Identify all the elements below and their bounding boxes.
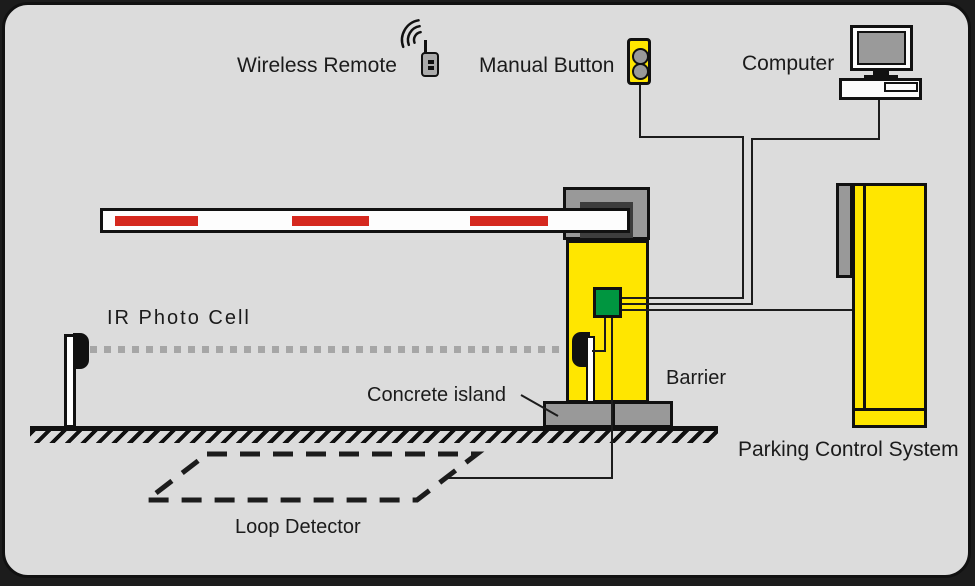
parking-cabinet-plinth-line	[855, 408, 925, 411]
remote-button-icon	[428, 66, 434, 70]
wireless-remote-label: Wireless Remote	[237, 54, 397, 78]
computer-drive-bay-icon	[884, 82, 918, 92]
computer-label: Computer	[742, 52, 834, 76]
concrete-island-joint	[612, 403, 615, 426]
barrier-arm-stripe	[470, 216, 548, 226]
concrete-island-label: Concrete island	[367, 384, 506, 407]
barrier-label: Barrier	[666, 367, 726, 390]
concrete-island-icon	[543, 401, 673, 428]
computer-screen-icon	[857, 31, 906, 65]
push-button-icon	[632, 63, 649, 80]
ir-photo-cell-label: IR Photo Cell	[107, 307, 251, 330]
parking-system-diagram: Wireless Remote Manual Button Computer I…	[0, 0, 975, 586]
remote-button-icon	[428, 60, 434, 64]
control-unit-icon	[593, 287, 622, 318]
diagram-canvas	[2, 2, 971, 578]
ir-beam	[90, 346, 570, 353]
loop-detector-label: Loop Detector	[235, 516, 361, 539]
ir-photocell-transmitter-icon	[73, 333, 89, 369]
parking-cabinet-back-panel	[836, 183, 853, 278]
barrier-arm-stripe	[115, 216, 198, 226]
barrier-post-icon	[566, 240, 649, 403]
wireless-remote-icon	[421, 52, 439, 77]
ir-photocell-receiver-pole	[586, 336, 595, 403]
parking-cabinet-door-line	[863, 186, 866, 410]
ground-hatch	[30, 431, 718, 443]
parking-control-system-label: Parking Control System	[738, 438, 959, 462]
manual-button-label: Manual Button	[479, 54, 614, 78]
barrier-arm-stripe	[292, 216, 369, 226]
